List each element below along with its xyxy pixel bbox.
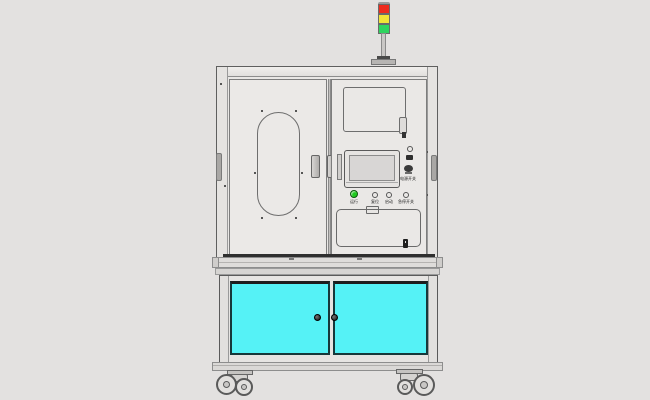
- tabletop-line: [213, 262, 442, 263]
- indicator-lamp-icon: [407, 146, 413, 152]
- right-door-knob: [331, 314, 338, 321]
- estop-mushroom-icon: [404, 165, 413, 172]
- power-switch-label: 电源开关: [396, 176, 420, 181]
- stack-light-base-plate: [371, 59, 396, 65]
- run-button: [386, 192, 392, 198]
- viewing-window: [343, 87, 406, 132]
- window-latch-foot: [402, 132, 406, 138]
- top-beam: [217, 67, 437, 77]
- tabletop-right-cap: [436, 257, 443, 268]
- left-side-handle: [216, 153, 222, 181]
- tabletop-left-cap: [212, 257, 219, 268]
- monitor-bottom-line: [346, 182, 398, 183]
- right-side-handle: [431, 155, 437, 181]
- window-tick-mark: [295, 217, 297, 219]
- start-button-label: 运行: [346, 199, 362, 204]
- sub-band: [215, 268, 440, 275]
- base-rail-line: [213, 365, 442, 366]
- left-door-knob: [314, 314, 321, 321]
- right-caster-hub2: [402, 384, 408, 390]
- lower-right-post: [428, 276, 437, 362]
- stack-light-red-icon: [378, 4, 390, 14]
- machine-illustration: 电源开关 运行 复位 启动 急停开关: [0, 0, 650, 400]
- window-tick-mark: [261, 217, 263, 219]
- start-button: [350, 190, 358, 198]
- reset-button: [372, 192, 378, 198]
- lower-access-door: [336, 209, 421, 247]
- left-caster-hub: [223, 381, 230, 388]
- monitor-side-bracket: [337, 154, 342, 180]
- window-tick-mark: [301, 172, 303, 174]
- access-door-lock-dot: [405, 241, 406, 243]
- cyan-door-right: [333, 281, 428, 355]
- run-button-label: 启动: [382, 199, 396, 204]
- left-caster-hub2: [241, 384, 247, 390]
- estop-base: [405, 172, 412, 174]
- window-tick-mark: [295, 110, 297, 112]
- hinge-mark: [224, 185, 226, 187]
- tabletop-tick: [289, 258, 294, 260]
- stack-light-yellow-icon: [378, 14, 390, 24]
- reset-button-label: 复位: [368, 199, 382, 204]
- estop-button: [403, 192, 409, 198]
- lower-left-post: [220, 276, 229, 362]
- window-tick-mark: [254, 172, 256, 174]
- monitor-screen: [349, 155, 395, 181]
- stadium-window: [257, 112, 300, 216]
- window-tick-mark: [261, 110, 263, 112]
- tabletop-tick: [357, 258, 362, 260]
- right-caster-hub: [420, 381, 428, 389]
- hinge-mark: [220, 83, 222, 85]
- left-door-handle: [311, 155, 320, 178]
- power-rocker-switch-icon: [406, 155, 413, 160]
- estop-button-label: 急停开关: [395, 199, 417, 204]
